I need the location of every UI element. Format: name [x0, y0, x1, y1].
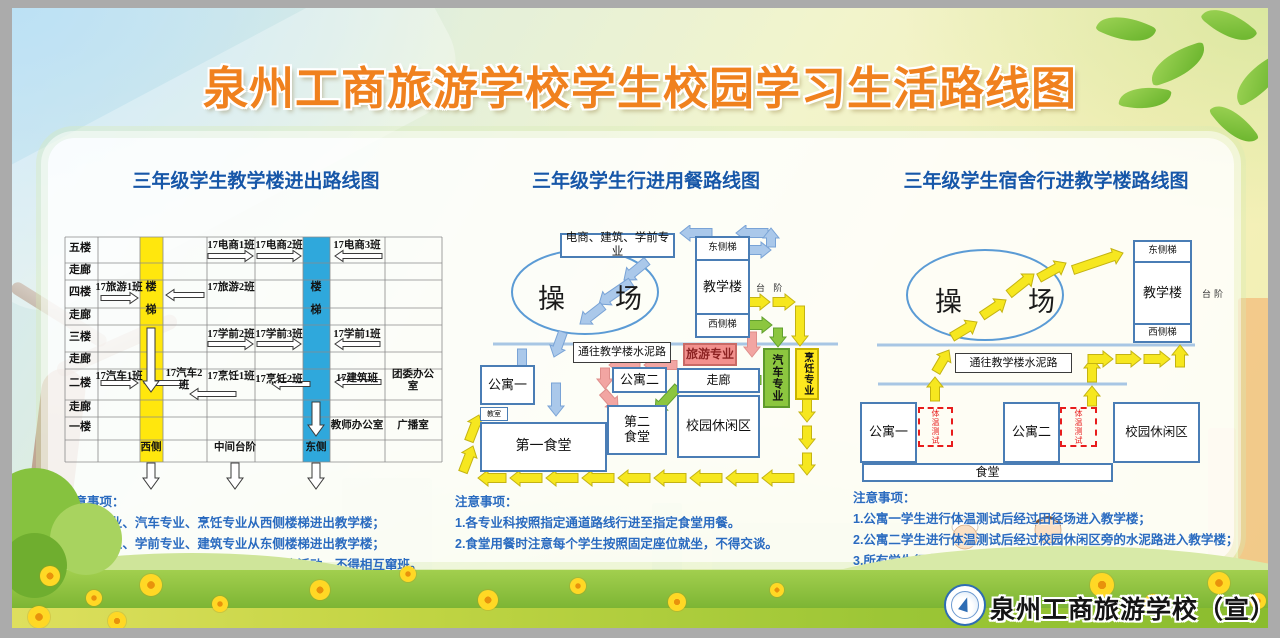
west-stair-char: 楼	[144, 281, 158, 293]
tourism-major-box: 旅游专业	[683, 343, 737, 366]
section-title-3: 三年级学生宿舍行进教学楼路线图	[850, 166, 1242, 193]
diagram1-graphics	[60, 230, 452, 500]
flower	[478, 590, 498, 610]
floor-label: 二楼	[64, 377, 96, 389]
note-line: 1.公寓一学生进行体温测试后经过田径场进入教学楼；	[853, 509, 1243, 530]
floor-label: 走廊	[64, 353, 96, 365]
flower	[310, 580, 330, 600]
cell-ly1: 17旅游1班	[93, 282, 145, 294]
auto-major-box: 汽车专业	[763, 348, 790, 408]
cell-xq2: 17学前2班	[206, 329, 256, 341]
east-stair-box: 东侧梯	[695, 236, 750, 261]
flower	[28, 606, 50, 628]
playground-char: 场	[1028, 280, 1055, 319]
leisure-area-box: 校园休闲区	[1113, 402, 1200, 463]
poster-title: 泉州工商旅游学校学生校园学习生活路线图	[12, 52, 1268, 117]
playground-char: 操	[538, 277, 565, 316]
flower	[140, 574, 162, 596]
leisure-area-box: 校园休闲区	[677, 395, 760, 458]
notes-panel-2: 注意事项： 1.各专业科按照指定通道路线行进至指定食堂用餐。 2.食堂用餐时注意…	[455, 492, 845, 555]
road-box: 通往教学楼水泥路	[573, 342, 671, 363]
middle-stairs-label: 中间台阶	[205, 442, 265, 454]
steps-label: 台阶	[1202, 287, 1226, 300]
apartment1-box: 公寓一	[860, 402, 917, 463]
temp-test-box-1: 体温测试	[918, 407, 953, 447]
playground-char: 操	[935, 280, 962, 319]
cell-ds2: 17电商2班	[254, 240, 304, 252]
cell-twbgs: 团委办公室	[387, 369, 439, 393]
floor-label: 五楼	[64, 242, 96, 254]
apartment1-box: 公寓一	[480, 365, 535, 405]
leaf	[1200, 8, 1258, 52]
cell-ds3: 17电商3班	[331, 240, 383, 252]
note-line: 1.各专业科按照指定通道路线行进至指定食堂用餐。	[455, 513, 845, 534]
canteen2-box: 第二食堂	[607, 405, 667, 455]
school-logo-emblem	[951, 591, 979, 619]
temp-test-box-2: 体温测试	[1060, 407, 1097, 447]
grid-lines	[65, 237, 442, 462]
canteen2-label: 第二食堂	[622, 415, 652, 445]
diagram-teaching-building: 五楼 走廊 四楼 走廊 三楼 走廊 二楼 走廊 一楼 楼 梯 楼 梯 17电商1…	[60, 230, 452, 500]
diagram-dorm-routes: 操 场 台阶 东侧梯 教学楼 西侧梯 通往教学楼水泥路 公寓一 体温测试 公寓二…	[850, 225, 1235, 487]
flower	[108, 612, 126, 628]
cell-qc1: 17汽车1班	[94, 371, 144, 383]
west-stair-char: 梯	[144, 304, 158, 316]
flower	[86, 590, 102, 606]
cell-jsbgs: 教师办公室	[329, 420, 385, 432]
school-logo	[944, 584, 986, 626]
east-stair-char: 梯	[309, 304, 323, 316]
floor-label: 四楼	[64, 286, 96, 298]
west-stair-box: 西侧梯	[1133, 323, 1192, 343]
poster-background: 泉州工商旅游学校学生校园学习生活路线图 三年级学生教学楼进出路线图 三年级学生行…	[12, 8, 1268, 628]
footer-school-name: 泉州工商旅游学校（宣）	[990, 590, 1268, 626]
cell-ly2: 17旅游2班	[206, 282, 256, 294]
notes-title: 注意事项：	[455, 492, 845, 513]
road-box: 通往教学楼水泥路	[955, 353, 1072, 373]
corridor-box: 走廊	[677, 368, 760, 393]
west-stair-box: 西侧梯	[695, 313, 750, 338]
section-title-1: 三年级学生教学楼进出路线图	[60, 166, 452, 193]
east-stair-char: 楼	[309, 281, 323, 293]
floor-label: 走廊	[64, 264, 96, 276]
leaf	[1095, 8, 1157, 52]
cell-jz: 17建筑班	[331, 373, 383, 385]
east-stair-box: 东侧梯	[1133, 240, 1192, 263]
cell-pr1: 17烹饪1班	[207, 371, 255, 383]
playground-char: 场	[615, 277, 642, 316]
note-line: 2.食堂用餐时注意每个学生按照固定座位就坐，不得交谈。	[455, 534, 845, 555]
cell-xq3: 17学前3班	[254, 329, 304, 341]
teaching-building-box: 教学楼	[1133, 261, 1192, 325]
floor-label: 走廊	[64, 401, 96, 413]
classroom-box: 教室	[480, 407, 508, 421]
diagram-dining-routes: 操 场 台 阶 电商、建筑、学前专业 东侧梯 教学楼 西侧梯 通往教学楼水泥路 …	[450, 225, 842, 487]
floor-label: 走廊	[64, 309, 96, 321]
section-title-2: 三年级学生行进用餐路线图	[450, 166, 842, 193]
notes-title: 注意事项：	[853, 488, 1243, 509]
cell-qc2: 17汽车2班	[163, 368, 205, 392]
steps-label: 台 阶	[756, 281, 785, 294]
flower	[400, 566, 416, 582]
cooking-major-box: 烹饪专业	[795, 348, 819, 400]
cell-xq1: 17学前1班	[331, 329, 383, 341]
apartment2-box: 公寓二	[612, 367, 667, 393]
majors-top-box: 电商、建筑、学前专业	[560, 233, 675, 258]
canteen-box: 食堂	[862, 463, 1113, 482]
floor-label: 一楼	[64, 421, 96, 433]
flower	[212, 596, 228, 612]
flower	[668, 593, 686, 611]
west-side-label: 西侧	[131, 442, 171, 454]
canteen1-box: 第一食堂	[480, 422, 607, 472]
teaching-building-box: 教学楼	[695, 259, 750, 315]
notes-title: 注意事项：	[62, 492, 452, 513]
cell-ds1: 17电商1班	[206, 240, 256, 252]
east-side-label: 东侧	[296, 442, 336, 454]
floor-label: 三楼	[64, 331, 96, 343]
cell-gbs: 广播室	[387, 420, 439, 432]
apartment2-box: 公寓二	[1003, 402, 1060, 463]
flower	[770, 583, 784, 597]
flower	[40, 566, 60, 586]
flower	[570, 578, 586, 594]
cell-pr2: 17烹饪2班	[254, 374, 304, 386]
